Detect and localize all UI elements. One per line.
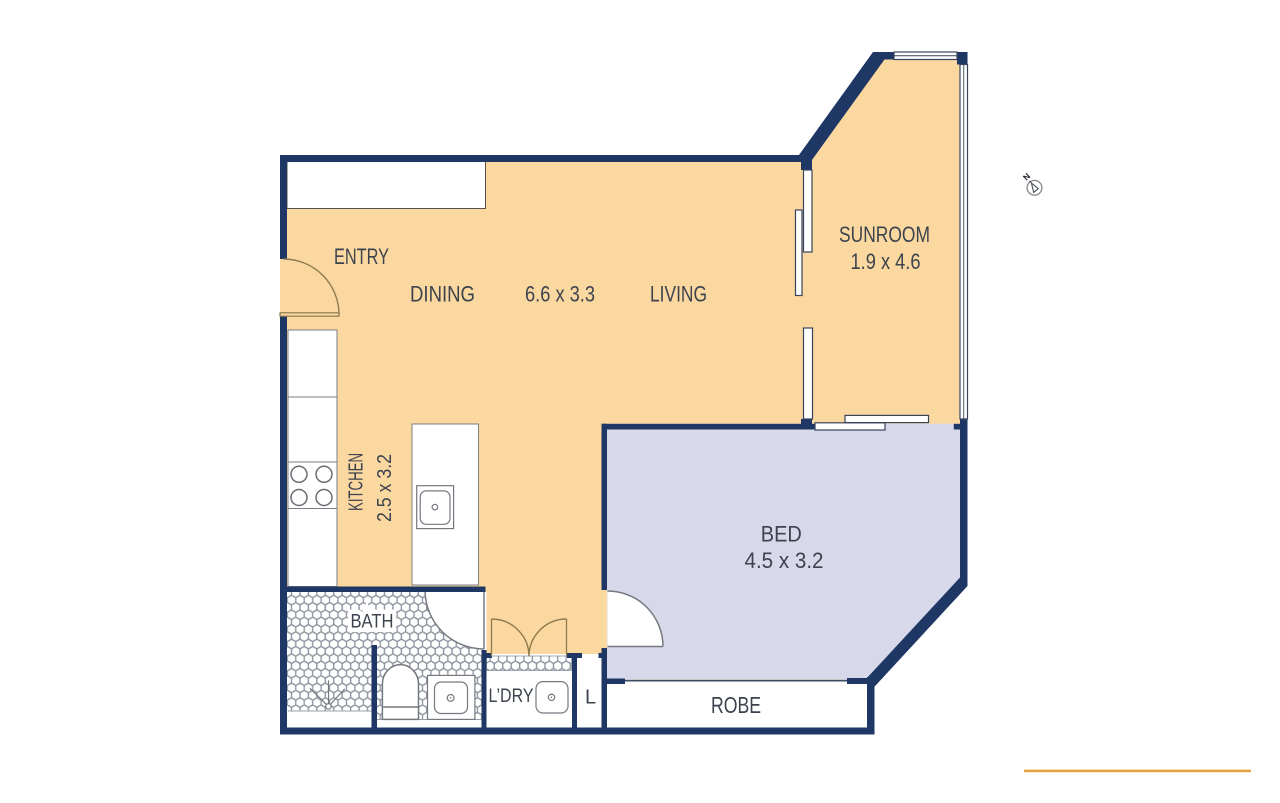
svg-text:2.5 x 3.2: 2.5 x 3.2: [374, 454, 396, 522]
svg-text:DINING: DINING: [410, 282, 475, 307]
svg-text:L: L: [585, 687, 596, 709]
svg-text:L’DRY: L’DRY: [489, 686, 534, 707]
svg-text:6.6 x 3.3: 6.6 x 3.3: [525, 282, 595, 307]
svg-text:ENTRY: ENTRY: [334, 244, 389, 269]
svg-text:LIVING: LIVING: [650, 282, 707, 307]
svg-text:SUNROOM: SUNROOM: [839, 222, 930, 247]
svg-text:4.5 x 3.2: 4.5 x 3.2: [745, 548, 824, 573]
svg-text:ROBE: ROBE: [711, 692, 761, 718]
svg-text:BATH: BATH: [351, 612, 394, 633]
svg-text:1.9 x 4.6: 1.9 x 4.6: [851, 249, 921, 274]
svg-text:KITCHEN: KITCHEN: [346, 453, 368, 511]
svg-text:BED: BED: [761, 521, 802, 546]
